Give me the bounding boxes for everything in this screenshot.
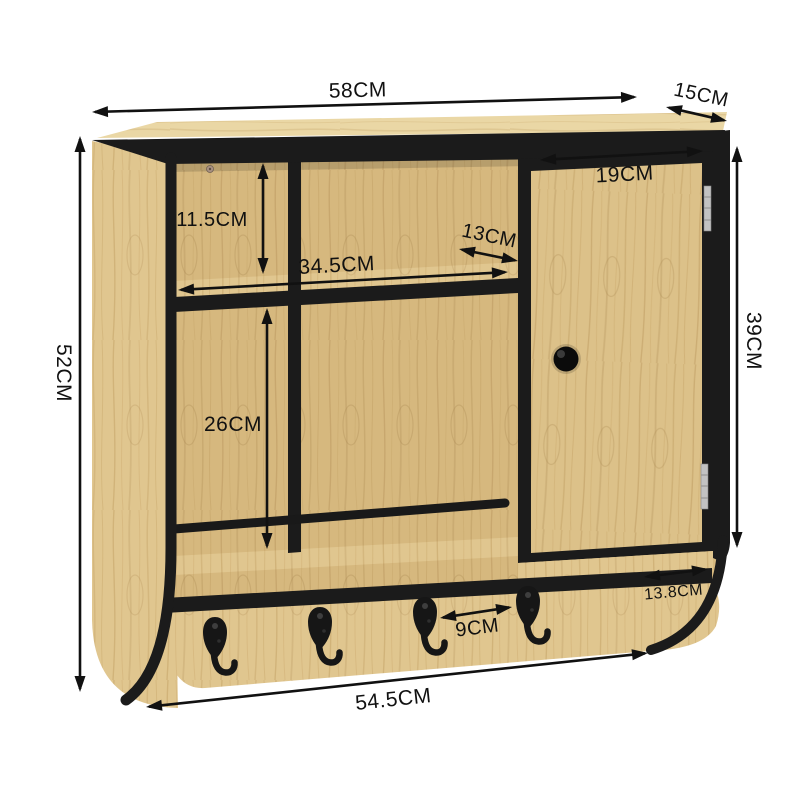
arrowhead-icon — [732, 532, 743, 548]
dimension-label-upper-compartment-height: 11.5CM — [176, 209, 248, 231]
dimension-label-overall-height: 52CM — [52, 344, 75, 402]
arrowhead-icon — [75, 676, 86, 692]
vertical-divider — [288, 161, 301, 553]
hook-screw-icon — [212, 623, 218, 629]
hook-screw-lower-icon — [427, 619, 431, 623]
hook-screw-icon — [422, 603, 428, 609]
dimension-label-bottom-width: 54.5CM — [354, 684, 433, 715]
arrowhead-icon — [92, 106, 108, 117]
dimension-door-height: 39CM — [732, 146, 766, 548]
dimension-label-overall-width: 58CM — [329, 78, 388, 103]
arrowhead-icon — [621, 92, 637, 103]
door-hinge-bottom — [701, 464, 708, 509]
cabinet-door — [518, 151, 713, 563]
hook-screw-icon — [317, 613, 323, 619]
door-knob — [554, 347, 579, 372]
dimension-label-lower-compartment-height: 26CM — [204, 413, 262, 436]
arrowhead-icon — [75, 136, 86, 152]
hook-screw-lower-icon — [530, 608, 534, 612]
hook-screw-icon — [525, 592, 531, 598]
cabinet — [92, 112, 730, 708]
dimension-label-shelf-width: 34.5CM — [298, 252, 376, 279]
hook-screw-lower-icon — [217, 639, 221, 643]
door-knob-glint — [557, 350, 565, 358]
back-screw-center — [209, 168, 211, 170]
door-hinge-top — [704, 186, 711, 231]
hook-screw-lower-icon — [322, 629, 326, 633]
arrowhead-icon — [732, 146, 743, 162]
dimension-overall-height: 52CM — [52, 136, 86, 692]
dimension-label-door-width: 19CM — [595, 162, 654, 188]
right-frame-column — [713, 130, 730, 562]
dimension-label-door-height: 39CM — [742, 312, 765, 370]
product-dimension-diagram: 58CM15CM52CM11.5CM34.5CM13CM26CM19CM39CM… — [0, 0, 800, 800]
dimension-overall-width: 58CM — [92, 78, 637, 117]
wall-shelf-illustration: 58CM15CM52CM11.5CM34.5CM13CM26CM19CM39CM… — [0, 0, 800, 800]
